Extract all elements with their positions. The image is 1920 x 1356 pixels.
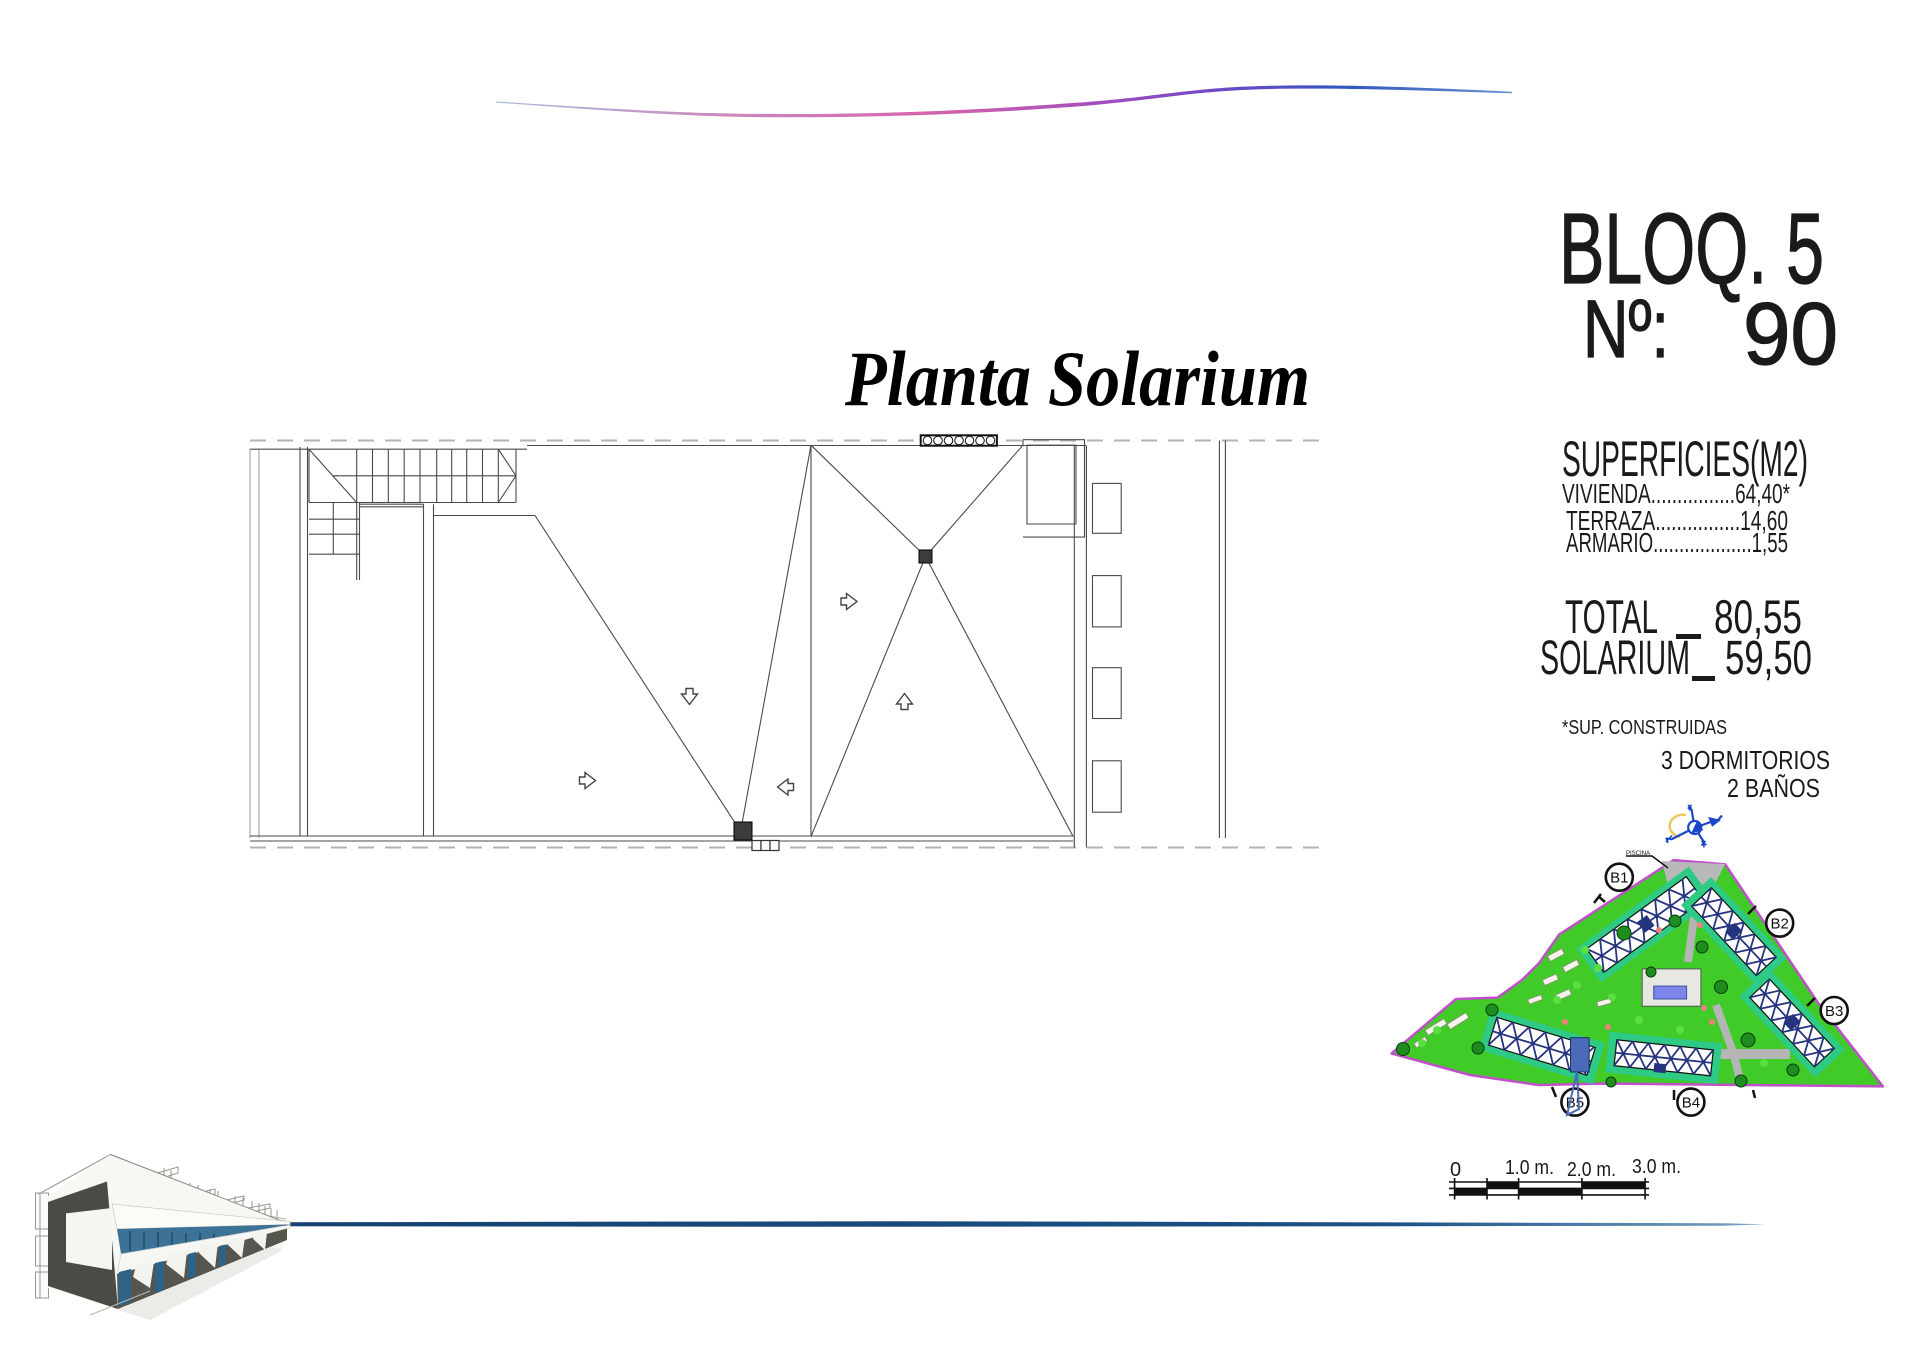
svg-text:Nº:: Nº:	[1583, 284, 1669, 375]
svg-text:B4: B4	[1682, 1094, 1700, 1111]
svg-text:SOLARIUM: SOLARIUM	[1540, 632, 1690, 685]
svg-text:B1: B1	[1610, 870, 1628, 887]
svg-text:2.0 m.: 2.0 m.	[1567, 1159, 1616, 1181]
svg-text:PISCINA: PISCINA	[1626, 851, 1650, 857]
svg-text:B3: B3	[1825, 1003, 1843, 1020]
svg-text:1.0 m.: 1.0 m.	[1505, 1157, 1554, 1179]
svg-text:3 DORMITORIOS: 3 DORMITORIOS	[1661, 745, 1830, 775]
svg-text:2 BAÑOS: 2 BAÑOS	[1727, 773, 1820, 803]
svg-text:B2: B2	[1771, 915, 1789, 932]
svg-text:*SUP. CONSTRUIDAS: *SUP. CONSTRUIDAS	[1562, 717, 1727, 739]
svg-text:3.0 m.: 3.0 m.	[1632, 1156, 1681, 1178]
svg-text:ARMARIO...................1,55: ARMARIO...................1,55	[1566, 527, 1788, 558]
svg-text:59,50: 59,50	[1725, 632, 1812, 685]
svg-text:Planta Solarium: Planta Solarium	[844, 335, 1310, 422]
svg-text:90: 90	[1743, 284, 1838, 383]
svg-text:0: 0	[1450, 1159, 1461, 1181]
